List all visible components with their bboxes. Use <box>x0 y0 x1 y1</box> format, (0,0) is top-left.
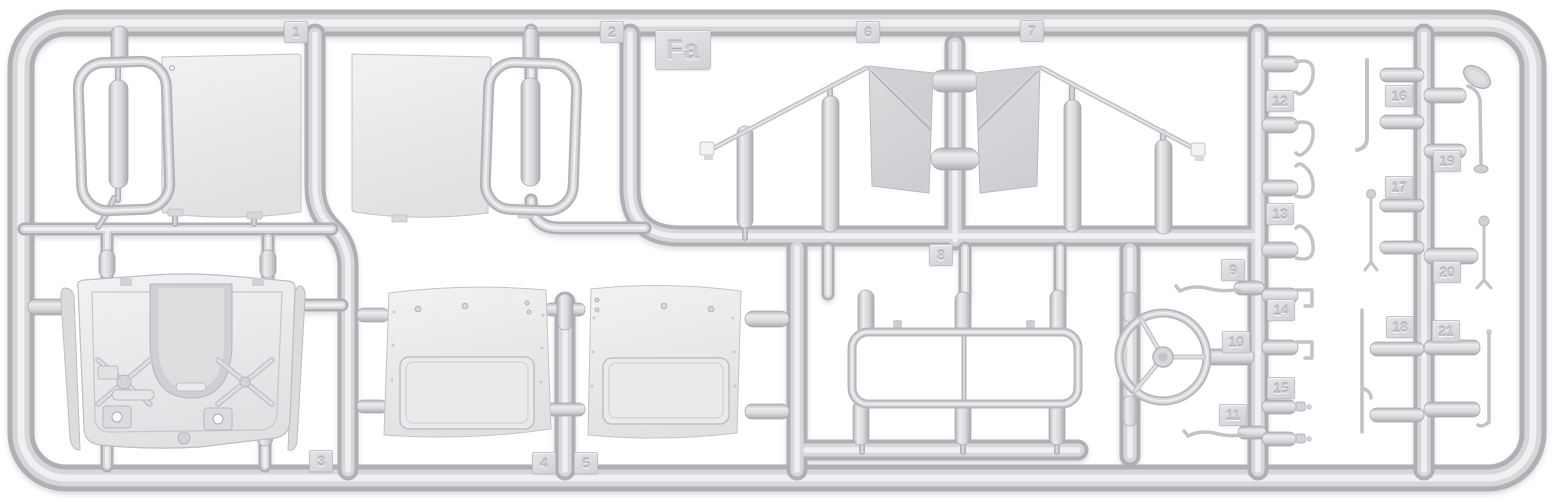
part-quarter-window-right <box>976 66 1040 193</box>
part-rearview-mirror <box>1460 61 1495 173</box>
part-tag-8: 8 <box>929 244 953 266</box>
part-tag-17: 17 <box>1385 176 1413 198</box>
part-tag-18: 18 <box>1386 316 1414 338</box>
part-tag-1: 1 <box>284 21 308 43</box>
part-wiper-bottom <box>1184 431 1245 436</box>
part-tag-12: 12 <box>1266 90 1294 112</box>
sprue-artwork <box>0 0 1555 502</box>
part-tag-14: 14 <box>1267 299 1295 321</box>
part-cowl-panel-right <box>588 285 741 438</box>
part-tag-9: 9 <box>1221 259 1245 281</box>
part-tag-3: 3 <box>309 450 333 472</box>
parts-small-knobs <box>1296 402 1312 443</box>
part-door-right <box>352 54 578 222</box>
part-door-left <box>77 54 301 219</box>
parts-lever-rods <box>1357 60 1377 432</box>
parts-shift-rods <box>1477 216 1492 426</box>
part-cab-panel <box>61 274 305 450</box>
part-tag-5: 5 <box>574 452 598 474</box>
part-tag-2: 2 <box>600 21 624 43</box>
part-tag-6: 6 <box>856 21 880 43</box>
part-tag-20: 20 <box>1433 261 1461 283</box>
part-tag-4: 4 <box>532 452 556 474</box>
part-cowl-panel-left <box>384 287 551 437</box>
sprue-frame-id-tag: Fa <box>655 30 711 70</box>
part-windshield-frame <box>852 320 1078 404</box>
part-wiper-top <box>1176 286 1240 291</box>
part-tag-10: 10 <box>1222 331 1250 353</box>
part-tag-7: 7 <box>1020 20 1044 42</box>
part-tag-13: 13 <box>1266 203 1294 225</box>
parts-pedal-brackets <box>1297 290 1312 358</box>
part-tag-16: 16 <box>1385 85 1413 107</box>
part-tag-21: 21 <box>1432 320 1460 342</box>
part-tag-19: 19 <box>1433 150 1461 172</box>
part-tag-15: 15 <box>1267 377 1295 399</box>
part-tag-11: 11 <box>1219 404 1247 426</box>
sprue-photo: Fa 1 2 3 4 5 6 7 8 9 10 11 12 13 14 15 1… <box>0 0 1555 502</box>
parts-door-handles <box>1296 61 1313 259</box>
part-quarter-window-left <box>869 66 933 193</box>
